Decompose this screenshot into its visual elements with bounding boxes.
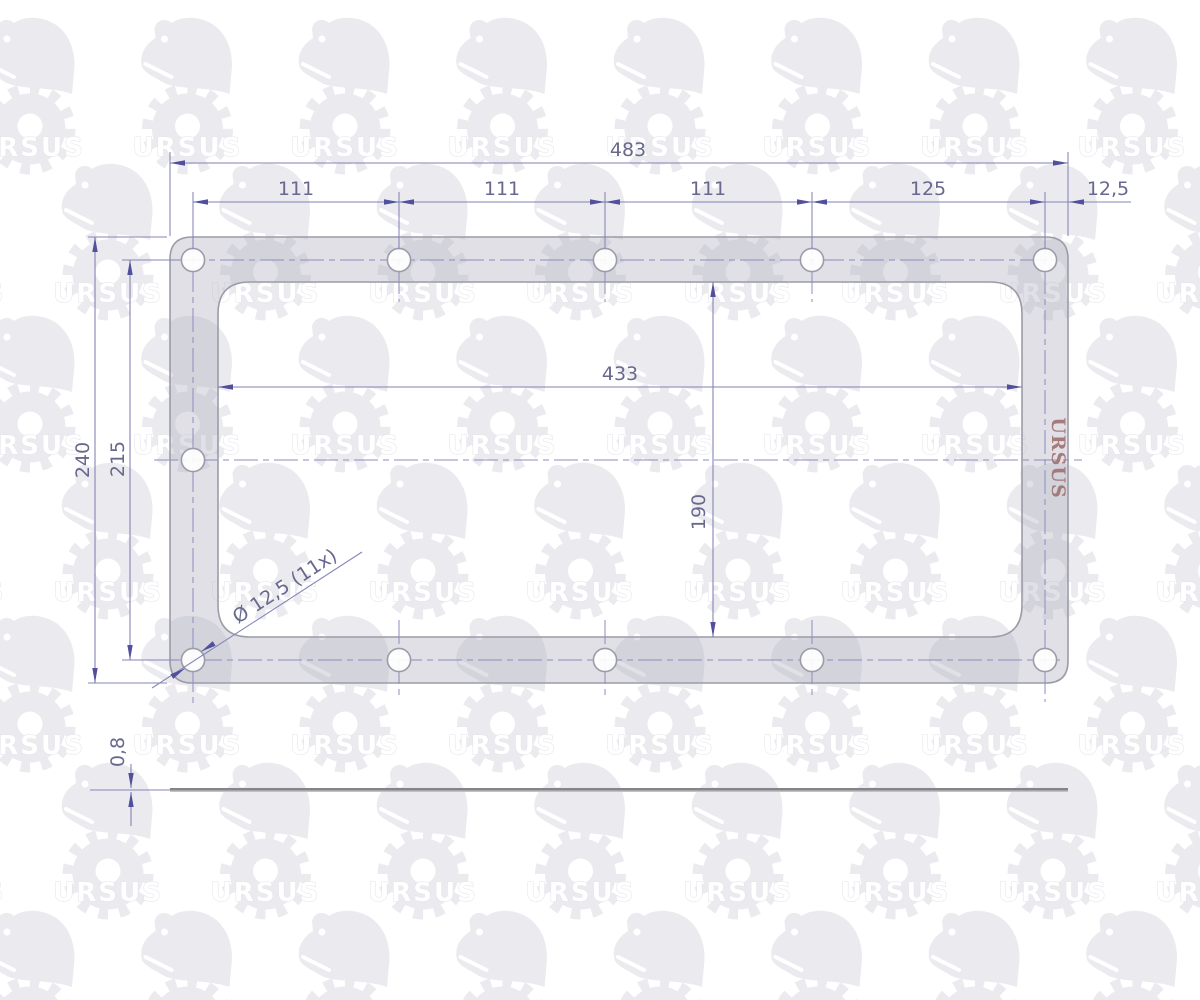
watermark-instance [290,18,400,169]
watermark-instance [0,616,85,767]
dim-inner-width: 433 [602,363,638,385]
watermark-instance [763,18,873,169]
hole [800,648,823,671]
hole [181,248,204,271]
hole [387,248,410,271]
watermark-instance [290,316,400,467]
watermark-instance [448,911,558,1000]
hole [181,648,204,671]
dim-pitch-2: 111 [484,178,520,200]
watermark-instance [920,18,1030,169]
watermark-instance [0,18,85,169]
watermark-instance [448,316,558,467]
hole [593,648,616,671]
watermark-instance [290,911,400,1000]
dim-inner-height: 190 [688,494,710,530]
dim-pitch-4: 125 [910,178,946,200]
hole [1033,648,1056,671]
hole [593,248,616,271]
watermark-instance [0,463,5,614]
gasket-side-view [170,788,1068,792]
hole [800,248,823,271]
technical-drawing-page: URSUS [0,0,1200,1000]
watermark-instance [0,911,85,1000]
watermark-instance [368,463,478,614]
watermark-instance [605,316,715,467]
dim-edge-offset: 12,5 [1087,178,1129,200]
watermark-instance [53,763,163,914]
dim-pitch-1: 111 [278,178,314,200]
watermark-instance [0,763,5,914]
watermark-instance [1078,911,1188,1000]
watermark-instance [763,316,873,467]
watermark-instance [1156,763,1200,914]
hole [1033,248,1056,271]
watermark-instance [763,911,873,1000]
watermark-instance [448,18,558,169]
watermark-instance [1156,463,1200,614]
gasket-brand-text: URSUS [1047,417,1069,498]
dim-overall-width: 483 [610,139,646,161]
watermark-instance [368,763,478,914]
watermark-instance [1078,316,1188,467]
watermark-instance [920,316,1030,467]
watermark-instance [53,463,163,614]
watermark-instance [53,164,163,315]
dim-overall-height: 240 [72,442,94,478]
watermark-instance [841,463,951,614]
dim-pitch-3: 111 [690,178,726,200]
hole [387,648,410,671]
dim-hole-row-spacing: 215 [107,441,129,477]
watermark-instance [998,763,1108,914]
watermark-instance [920,911,1030,1000]
watermark-instance [841,763,951,914]
watermark-instance [133,18,243,169]
hole [181,448,204,471]
watermark-instance [0,164,5,315]
watermark-instance [526,463,636,614]
watermark-instance [683,763,793,914]
watermark-instance [526,763,636,914]
watermark-instance [683,463,793,614]
watermark-instance [605,911,715,1000]
gasket-drawing-canvas: URSUS [0,0,1200,1000]
watermark-instance [133,911,243,1000]
watermark-instance [1156,164,1200,315]
watermark-instance [1078,18,1188,169]
watermark-instance [1078,616,1188,767]
watermark-instance [211,763,321,914]
dim-thickness: 0,8 [107,737,129,767]
